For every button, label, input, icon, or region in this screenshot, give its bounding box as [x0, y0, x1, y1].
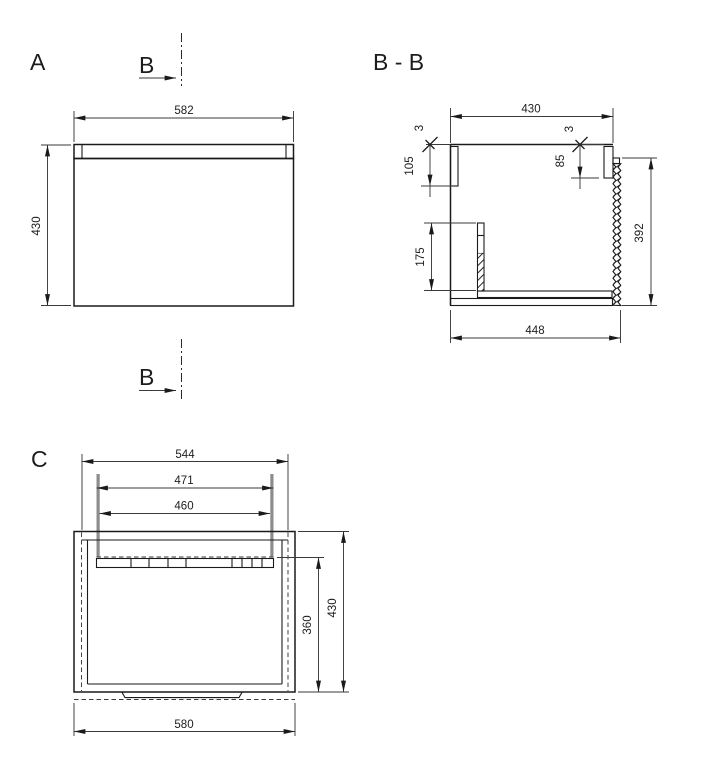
slat-top-tab: [613, 158, 620, 164]
technical-drawing-sheet: A B 582 430 B: [0, 0, 708, 768]
dim-bb-front-height: 392: [622, 158, 657, 306]
section-marker-b-top-label: B: [139, 52, 154, 78]
section-bb-label: B - B: [373, 49, 424, 75]
dim-c-rail-inner-text: 460: [174, 501, 193, 513]
dim-bb-left-offset: 3: [414, 125, 451, 152]
dim-bb-left-wall: 105: [404, 145, 452, 198]
right-wall-section: [604, 147, 613, 179]
dim-c-width-text: 580: [174, 719, 193, 731]
dim-c-top-width-text: 544: [175, 449, 195, 461]
dim-bb-divider: 175: [415, 223, 476, 291]
front-rail-bar: [97, 559, 274, 568]
dim-a-width-text: 582: [174, 105, 193, 117]
dim-c-inner-depth-text: 360: [302, 615, 314, 634]
view-a-front: A B 582 430 B: [30, 33, 294, 400]
left-rail: [97, 474, 100, 558]
cabinet-front-outline: [74, 145, 294, 307]
dim-c-rail-outer-text: 471: [174, 475, 193, 487]
dim-bb-bottom-width-text: 448: [525, 325, 544, 337]
dim-c-rail-outer: 471: [97, 475, 274, 488]
dim-c-top-width: 544: [82, 449, 288, 530]
dim-bb-bottom-width: 448: [451, 310, 621, 343]
dim-bb-right-wall: 85: [555, 145, 599, 190]
dim-c-rail-inner: 460: [100, 501, 271, 514]
section-marker-b-bottom-label: B: [139, 364, 154, 390]
dim-bb-right-offset-text: 3: [564, 126, 576, 132]
dim-c-width: 580: [74, 703, 295, 736]
bottom-panel-upper: [478, 291, 613, 298]
left-wall-section: [451, 147, 459, 187]
dim-bb-divider-text: 175: [415, 247, 427, 266]
dim-bb-right-wall-text: 85: [555, 155, 567, 168]
front-rail-bar-dividers: [131, 559, 262, 568]
bottom-panel-lower: [451, 299, 613, 306]
dim-a-height-text: 430: [31, 216, 43, 235]
section-bb-body: [451, 145, 621, 306]
dim-bb-top-width: 430: [451, 104, 614, 144]
section-marker-b-bottom: B: [139, 339, 182, 400]
view-a-label: A: [30, 49, 46, 75]
dim-a-height: 430: [31, 145, 71, 306]
dim-bb-front-height-text: 392: [634, 223, 646, 242]
dim-bb-left-wall-text: 105: [404, 156, 416, 175]
cabinet-top-outline: [74, 532, 295, 700]
recessed-handle: [122, 692, 242, 697]
view-c-top: C 544 471 460: [31, 446, 349, 736]
section-marker-b-top: B: [139, 33, 182, 86]
section-bb: B - B 430 3: [373, 49, 657, 343]
dim-bb-right-offset: 3: [564, 126, 604, 152]
dim-c-depth: 430: [298, 532, 349, 693]
dim-a-width: 582: [74, 105, 294, 142]
dim-c-inner-depth: 360: [277, 558, 324, 693]
slatted-drawer-front: [74, 159, 294, 307]
view-c-label: C: [31, 446, 48, 472]
dim-bb-left-offset-text: 3: [414, 125, 426, 131]
dim-c-depth-text: 430: [327, 598, 339, 617]
dim-bb-top-width-text: 430: [521, 104, 540, 116]
right-rail: [270, 474, 273, 558]
